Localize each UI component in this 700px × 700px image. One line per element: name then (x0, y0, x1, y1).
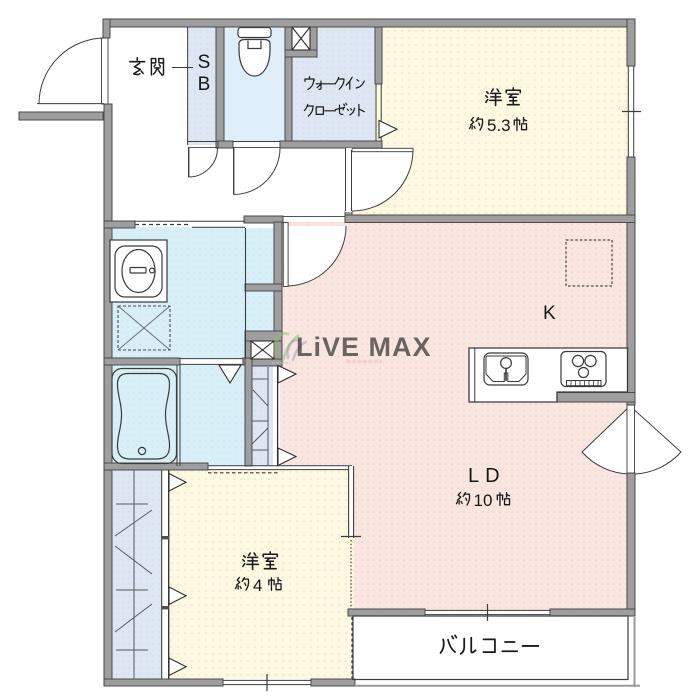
svg-text:5.3: 5.3 (487, 116, 511, 135)
svg-text:4: 4 (253, 576, 262, 595)
svg-text:B: B (198, 74, 211, 95)
svg-text:LiVE MAX: LiVE MAX (296, 332, 432, 362)
svg-text:10: 10 (474, 491, 493, 510)
svg-text:LD: LD (468, 465, 506, 487)
svg-text:K: K (543, 303, 556, 324)
svg-text:S: S (198, 52, 211, 73)
